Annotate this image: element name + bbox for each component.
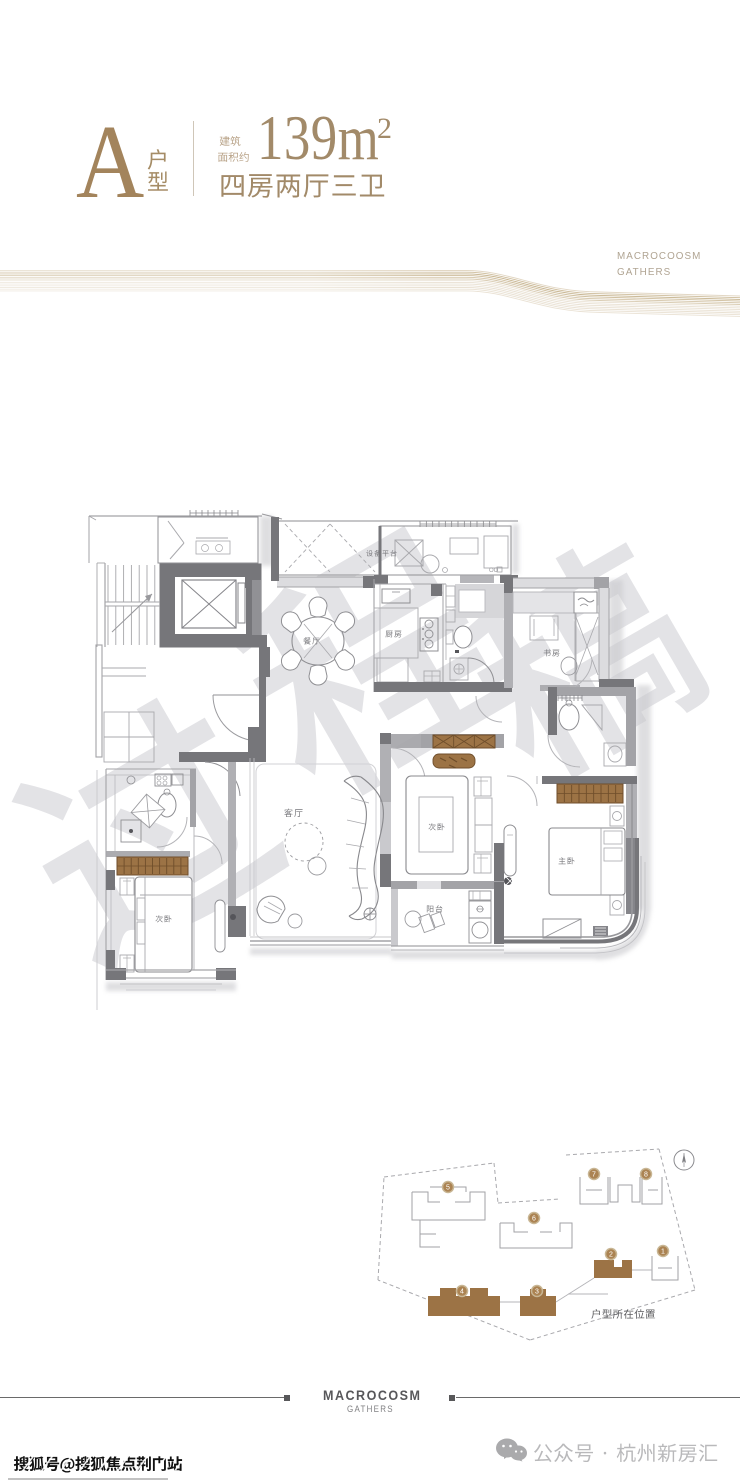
svg-text:4: 4 (460, 1289, 464, 1296)
svg-text:1: 1 (661, 1249, 665, 1256)
svg-text:2: 2 (609, 1252, 613, 1259)
svg-text:5: 5 (446, 1185, 450, 1192)
svg-text:3: 3 (535, 1289, 539, 1296)
svg-text:8: 8 (644, 1172, 648, 1179)
svg-text:6: 6 (532, 1216, 536, 1223)
svg-text:7: 7 (592, 1172, 596, 1179)
